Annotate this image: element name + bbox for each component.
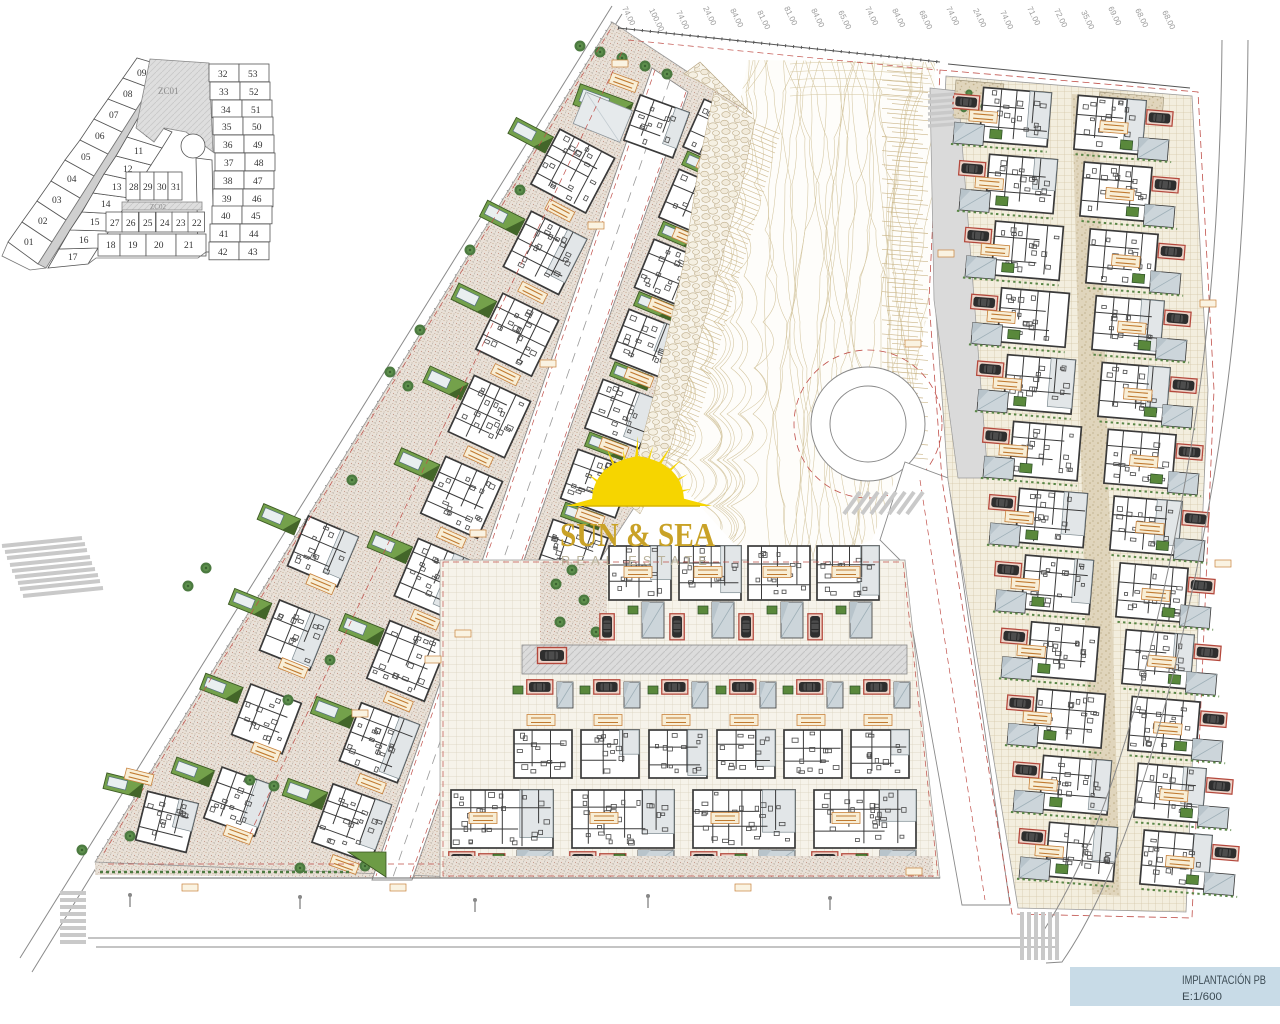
svg-text:REAL ESTATE: REAL ESTATE [561, 554, 713, 568]
svg-text:03: 03 [52, 196, 62, 206]
svg-text:50: 50 [252, 123, 262, 133]
svg-text:ZC01: ZC01 [158, 86, 179, 96]
svg-text:08: 08 [123, 90, 133, 100]
svg-text:15: 15 [90, 218, 100, 228]
svg-text:IMPLANTACIÓN PB: IMPLANTACIÓN PB [1182, 972, 1266, 987]
svg-text:47: 47 [253, 177, 263, 187]
svg-text:06: 06 [95, 132, 105, 142]
svg-text:14: 14 [101, 200, 111, 210]
svg-text:07: 07 [109, 111, 119, 121]
svg-text:52: 52 [249, 88, 259, 98]
svg-text:E:1/600: E:1/600 [1182, 991, 1222, 1003]
svg-text:32: 32 [218, 70, 228, 80]
svg-text:51: 51 [251, 106, 261, 116]
svg-text:41: 41 [219, 230, 229, 240]
svg-text:ZC02: ZC02 [150, 203, 166, 211]
svg-text:44: 44 [249, 230, 259, 240]
svg-text:02: 02 [38, 217, 48, 227]
svg-text:22: 22 [192, 219, 202, 229]
svg-text:40: 40 [221, 212, 231, 222]
svg-text:28: 28 [129, 183, 139, 193]
svg-text:36: 36 [223, 141, 233, 151]
svg-text:21: 21 [184, 241, 194, 251]
svg-text:49: 49 [253, 141, 263, 151]
svg-text:46: 46 [252, 195, 262, 205]
svg-text:24: 24 [160, 219, 170, 229]
svg-text:34: 34 [221, 106, 231, 116]
svg-text:26: 26 [126, 219, 136, 229]
svg-text:45: 45 [251, 212, 261, 222]
svg-text:35: 35 [222, 123, 232, 133]
svg-text:39: 39 [222, 195, 232, 205]
svg-text:19: 19 [128, 241, 138, 251]
svg-text:30: 30 [157, 183, 167, 193]
svg-text:04: 04 [67, 175, 77, 185]
svg-text:05: 05 [81, 153, 91, 163]
svg-text:38: 38 [223, 177, 233, 187]
svg-text:18: 18 [106, 241, 116, 251]
svg-text:09: 09 [137, 69, 147, 79]
svg-text:29: 29 [143, 183, 153, 193]
svg-text:31: 31 [171, 183, 181, 193]
svg-text:43: 43 [248, 248, 258, 258]
svg-text:11: 11 [134, 147, 143, 157]
svg-text:25: 25 [143, 219, 153, 229]
svg-text:01: 01 [24, 238, 34, 248]
svg-text:16: 16 [79, 236, 89, 246]
svg-text:48: 48 [254, 159, 264, 169]
svg-text:53: 53 [248, 70, 258, 80]
svg-text:37: 37 [224, 159, 234, 169]
svg-text:23: 23 [176, 219, 186, 229]
svg-text:17: 17 [68, 253, 78, 263]
svg-text:33: 33 [219, 88, 229, 98]
svg-text:SUN & SEA: SUN & SEA [560, 517, 715, 554]
svg-text:20: 20 [154, 241, 164, 251]
svg-text:13: 13 [112, 183, 122, 193]
svg-text:42: 42 [218, 248, 228, 258]
svg-text:27: 27 [110, 219, 120, 229]
